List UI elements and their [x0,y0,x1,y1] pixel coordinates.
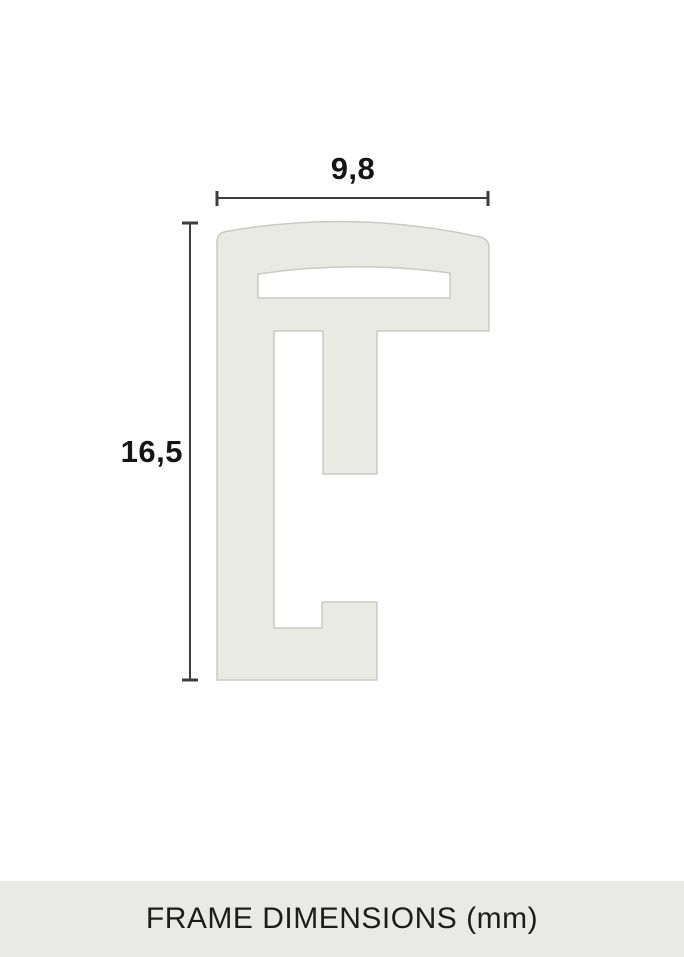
height-dimension-line [182,223,198,680]
width-dimension-label: 9,8 [331,151,376,186]
profile-shape [217,221,489,680]
frame-profile-diagram: 9,8 16,5 FRAME DIMENSIONS (mm) [0,0,684,957]
caption-bar: FRAME DIMENSIONS (mm) [0,881,684,957]
width-dimension-line [217,191,488,206]
height-dimension-label: 16,5 [121,434,183,469]
caption-text: FRAME DIMENSIONS (mm) [146,902,538,936]
profile-cross-section-drawing: 9,8 16,5 [0,0,684,957]
